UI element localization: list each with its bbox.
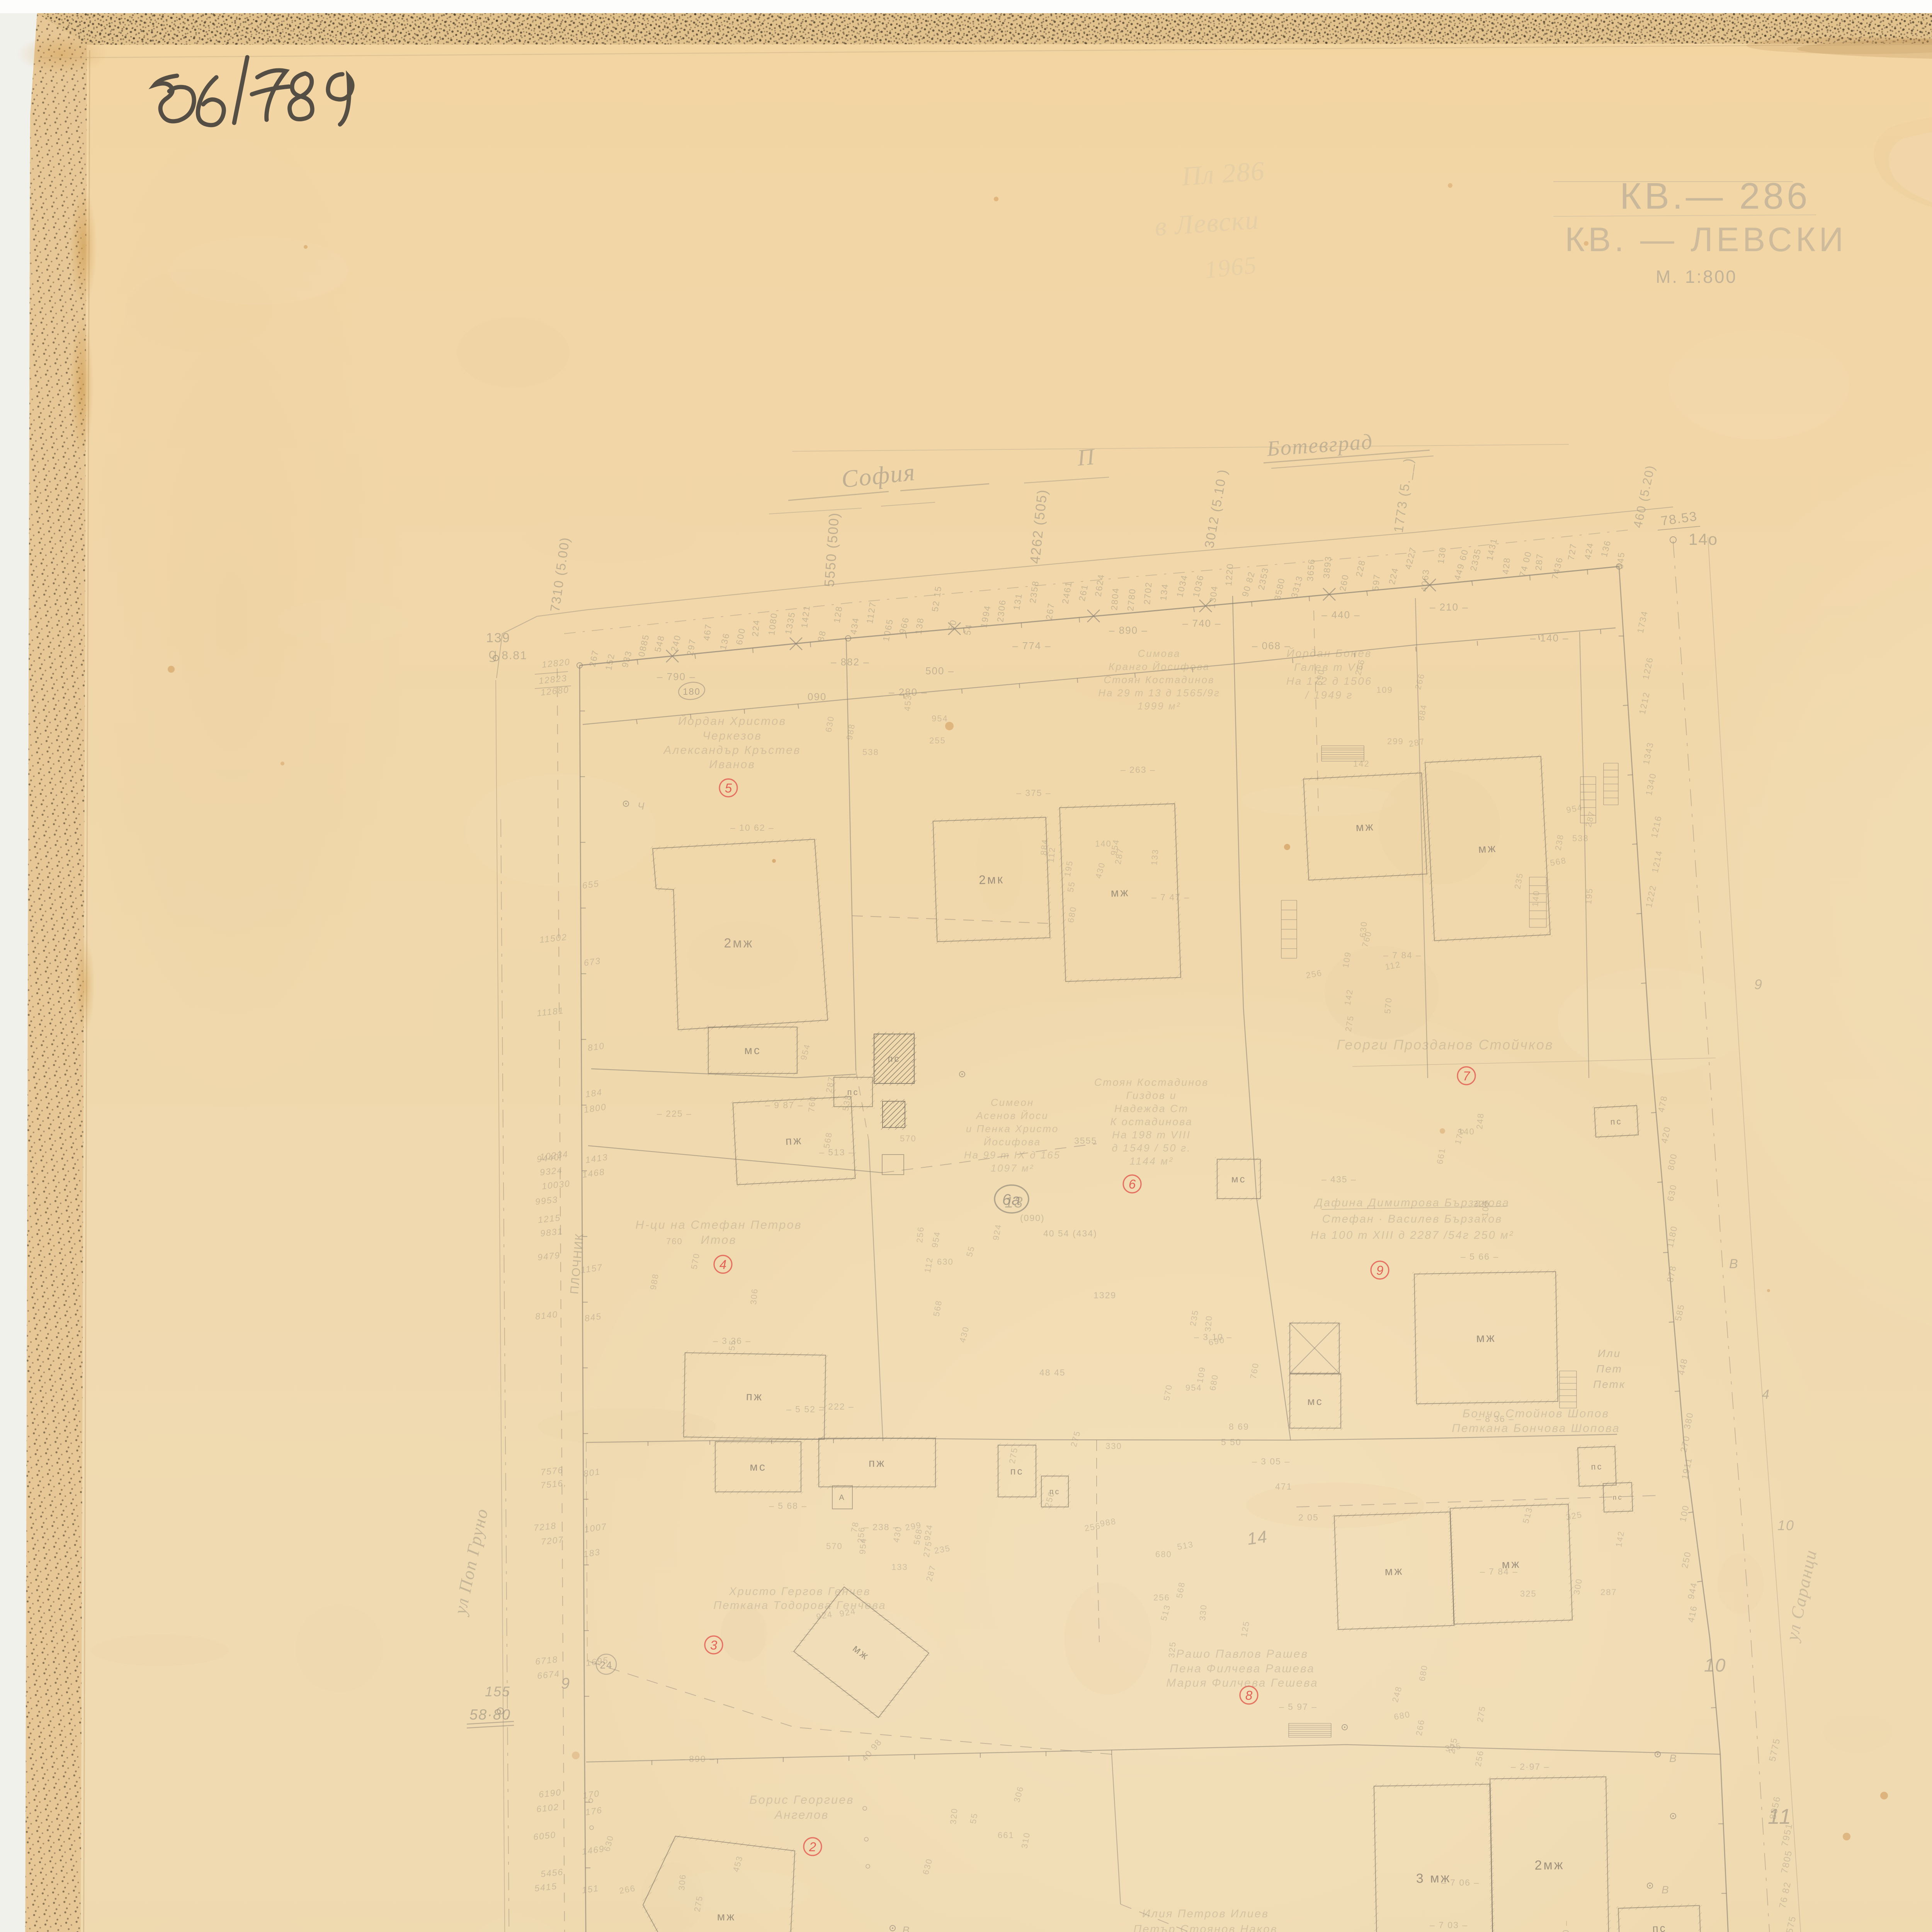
svg-text:325: 325 bbox=[1167, 1641, 1178, 1658]
svg-text:9: 9 bbox=[1376, 1263, 1383, 1277]
svg-text:пс: пс bbox=[1652, 1922, 1667, 1932]
svg-text:– 225 –: – 225 – bbox=[657, 1109, 692, 1119]
svg-text:133: 133 bbox=[891, 1562, 908, 1572]
svg-text:661: 661 bbox=[998, 1830, 1014, 1840]
svg-text:139: 139 bbox=[486, 631, 510, 645]
svg-text:1220: 1220 bbox=[1223, 563, 1235, 586]
svg-text:Стоян Костадинов: Стоян Костадинов bbox=[1094, 1077, 1209, 1088]
svg-text:Итов: Итов bbox=[701, 1233, 736, 1247]
svg-text:55: 55 bbox=[1065, 880, 1077, 893]
svg-text:– 222 –: – 222 – bbox=[819, 1401, 854, 1412]
svg-text:Гиздов и: Гиздов и bbox=[1126, 1090, 1177, 1101]
svg-text:Стоян Костадинов: Стоян Костадинов bbox=[1104, 674, 1214, 685]
svg-text:287: 287 bbox=[1533, 553, 1545, 571]
svg-text:мж: мж bbox=[717, 1910, 736, 1923]
svg-text:9: 9 bbox=[1754, 976, 1763, 992]
svg-text:760: 760 bbox=[806, 1095, 818, 1113]
svg-text:10: 10 bbox=[1777, 1517, 1794, 1533]
svg-text:Иванов: Иванов bbox=[709, 758, 755, 771]
svg-text:1144 м²: 1144 м² bbox=[1129, 1155, 1173, 1167]
svg-text:471: 471 bbox=[1275, 1481, 1292, 1492]
svg-text:13: 13 bbox=[1005, 1194, 1024, 1211]
svg-text:– 350 –: – 350 – bbox=[1561, 1920, 1571, 1932]
svg-text:287: 287 bbox=[1600, 1587, 1617, 1597]
svg-text:306: 306 bbox=[677, 1874, 688, 1891]
svg-text:256: 256 bbox=[915, 1226, 926, 1243]
svg-text:4: 4 bbox=[1762, 1387, 1770, 1402]
svg-text:– 10 62 –: – 10 62 – bbox=[730, 823, 774, 833]
svg-text:B: B bbox=[1669, 1752, 1677, 1764]
svg-text:Асенов Йоси: Асенов Йоси bbox=[975, 1110, 1049, 1121]
svg-text:9: 9 bbox=[561, 1675, 570, 1692]
svg-text:пж: пж bbox=[746, 1390, 764, 1403]
svg-text:М. 1:800: М. 1:800 bbox=[1656, 267, 1737, 287]
svg-text:58·80: 58·80 bbox=[469, 1707, 511, 1723]
svg-text:Йордан Бонев: Йордан Бонев bbox=[1287, 647, 1372, 659]
svg-text:Ангелов: Ангелов bbox=[774, 1808, 829, 1821]
svg-text:2мк: 2мк bbox=[978, 872, 1004, 887]
svg-text:пж: пж bbox=[869, 1457, 886, 1469]
svg-text:– 263 –: – 263 – bbox=[1121, 765, 1156, 775]
svg-text:453: 453 bbox=[902, 694, 913, 712]
svg-text:– 3 10 –: – 3 10 – bbox=[1194, 1332, 1232, 1342]
svg-text:3555: 3555 bbox=[1074, 1136, 1097, 1146]
svg-text:– 9 87 –: – 9 87 – bbox=[765, 1100, 803, 1110]
svg-text:пс: пс bbox=[1610, 1116, 1622, 1127]
svg-text:224: 224 bbox=[750, 619, 762, 637]
svg-text:Петкана Тодорова Генчева: Петкана Тодорова Генчева bbox=[713, 1599, 886, 1612]
svg-text:8 69: 8 69 bbox=[1229, 1422, 1249, 1432]
svg-text:570: 570 bbox=[826, 1541, 843, 1551]
svg-text:На 29 т 13 д 1565/9г: На 29 т 13 д 1565/9г bbox=[1098, 687, 1220, 699]
svg-text:6: 6 bbox=[1129, 1177, 1136, 1191]
svg-text:54: 54 bbox=[962, 623, 974, 636]
svg-text:мс: мс bbox=[750, 1461, 767, 1473]
svg-text:Александър Кръстев: Александър Кръстев bbox=[663, 744, 801, 757]
svg-text:630: 630 bbox=[937, 1257, 954, 1267]
svg-text:– 3 05 –: – 3 05 – bbox=[1252, 1456, 1290, 1466]
svg-text:5 50: 5 50 bbox=[1221, 1437, 1242, 1447]
svg-text:4063: 4063 bbox=[1419, 568, 1431, 592]
svg-text:345: 345 bbox=[1615, 551, 1626, 570]
svg-text:Симова: Симова bbox=[1138, 648, 1181, 659]
svg-text:1329: 1329 bbox=[1094, 1290, 1116, 1300]
svg-text:Ч: Ч bbox=[638, 800, 645, 812]
svg-text:– 3 36 –: – 3 36 – bbox=[713, 1336, 751, 1346]
svg-text:14: 14 bbox=[1246, 1527, 1269, 1549]
svg-text:2: 2 bbox=[809, 1840, 816, 1854]
svg-text:325: 325 bbox=[1473, 1199, 1490, 1209]
svg-text:д 1549 / 50 г.: д 1549 / 50 г. bbox=[1112, 1142, 1191, 1154]
svg-text:134: 134 bbox=[1158, 583, 1170, 601]
svg-text:– 5 97 –: – 5 97 – bbox=[1279, 1702, 1317, 1712]
svg-text:140: 140 bbox=[1530, 890, 1541, 907]
svg-text:Симеон: Симеон bbox=[991, 1097, 1034, 1108]
svg-text:– 5 68 –: – 5 68 – bbox=[769, 1501, 807, 1511]
svg-text:– 5 66 –: – 5 66 – bbox=[1461, 1252, 1499, 1262]
svg-text:325: 325 bbox=[1520, 1589, 1537, 1599]
svg-text:140: 140 bbox=[1095, 839, 1112, 849]
svg-text:2702: 2702 bbox=[1142, 581, 1154, 605]
svg-text:Пл 286: Пл 286 bbox=[1180, 156, 1266, 192]
svg-text:428: 428 bbox=[1500, 557, 1512, 575]
svg-text:8: 8 bbox=[1245, 1688, 1253, 1702]
svg-text:248: 248 bbox=[1475, 1112, 1486, 1130]
svg-text:Пена Филчева Рашева: Пена Филчева Рашева bbox=[1170, 1662, 1315, 1675]
svg-text:500 –: 500 – bbox=[925, 665, 954, 677]
svg-text:Йордан Христов: Йордан Христов bbox=[678, 714, 786, 728]
svg-text:пс: пс bbox=[1010, 1465, 1024, 1477]
svg-text:3656: 3656 bbox=[1305, 558, 1316, 582]
svg-text:Рашо Павлов Рашев: Рашо Павлов Рашев bbox=[1176, 1648, 1308, 1660]
svg-text:109: 109 bbox=[1376, 685, 1393, 695]
svg-text:538: 538 bbox=[862, 747, 879, 757]
svg-text:133: 133 bbox=[1149, 849, 1160, 866]
svg-text:пс: пс bbox=[1591, 1461, 1603, 1471]
svg-text:Кранго Йосифова: Кранго Йосифова bbox=[1109, 661, 1210, 672]
svg-text:П: П bbox=[1076, 444, 1097, 471]
svg-text:255: 255 bbox=[929, 736, 946, 745]
svg-text:(090): (090) bbox=[1020, 1213, 1045, 1223]
svg-text:Петк: Петк bbox=[1593, 1378, 1626, 1390]
svg-text:142: 142 bbox=[1353, 759, 1370, 769]
svg-text:– 774 –: – 774 – bbox=[1012, 640, 1051, 651]
svg-text:2мж: 2мж bbox=[1534, 1857, 1565, 1872]
svg-text:Петър Стоянов Наков: Петър Стоянов Наков bbox=[1133, 1923, 1277, 1932]
svg-text:мж: мж bbox=[1476, 1331, 1496, 1345]
svg-text:На 100 т XIII д 2287 /54г: На 100 т XIII д 2287 /54г 250 м² bbox=[1311, 1229, 1514, 1242]
svg-text:B: B bbox=[902, 1924, 910, 1932]
svg-text:Борис Георгиев: Борис Георгиев bbox=[749, 1793, 854, 1806]
svg-text:Надежда Ст: Надежда Ст bbox=[1114, 1103, 1189, 1114]
svg-text:538: 538 bbox=[1572, 833, 1589, 843]
svg-text:306: 306 bbox=[748, 1288, 760, 1305]
svg-text:пс: пс bbox=[888, 1054, 901, 1064]
svg-text:На 172 д 1506: На 172 д 1506 bbox=[1286, 675, 1372, 687]
svg-text:330: 330 bbox=[1197, 1604, 1209, 1621]
svg-text:Пет: Пет bbox=[1596, 1363, 1622, 1375]
svg-text:954: 954 bbox=[1185, 1383, 1202, 1393]
svg-text:884: 884 bbox=[1039, 838, 1050, 856]
svg-text:– 513 –: – 513 – bbox=[819, 1147, 854, 1157]
svg-text:1097 м²: 1097 м² bbox=[991, 1162, 1034, 1174]
svg-text:320: 320 bbox=[948, 1808, 959, 1825]
svg-text:597: 597 bbox=[1370, 573, 1382, 592]
svg-text:155: 155 bbox=[485, 1684, 510, 1699]
svg-text:А: А bbox=[839, 1493, 845, 1502]
svg-text:– 7 06 –: – 7 06 – bbox=[1441, 1878, 1480, 1888]
svg-text:– 435 –: – 435 – bbox=[1321, 1174, 1357, 1184]
svg-text:– 790 –: – 790 – bbox=[657, 671, 696, 682]
svg-text:– 7 03 –: – 7 03 – bbox=[1430, 1920, 1468, 1930]
svg-text:760: 760 bbox=[666, 1236, 683, 1246]
svg-text:– 210 –: – 210 – bbox=[1430, 601, 1469, 613]
svg-text:пс: пс bbox=[1612, 1493, 1623, 1502]
svg-text:3: 3 bbox=[710, 1638, 718, 1652]
svg-text:2 05: 2 05 bbox=[1298, 1512, 1319, 1522]
svg-text:К остадинова: К остадинова bbox=[1110, 1116, 1192, 1128]
svg-text:680: 680 bbox=[1155, 1549, 1172, 1559]
svg-text:140: 140 bbox=[1458, 1127, 1475, 1136]
svg-text:Илия Петров Илиев: Илия Петров Илиев bbox=[1142, 1908, 1269, 1920]
svg-text:55: 55 bbox=[968, 1812, 980, 1824]
svg-text:570: 570 bbox=[1383, 997, 1394, 1014]
svg-text:Христо Гергов Генчев: Христо Гергов Генчев bbox=[728, 1585, 871, 1598]
svg-text:2804: 2804 bbox=[1109, 587, 1121, 611]
svg-text:320: 320 bbox=[1203, 1315, 1214, 1332]
svg-text:– 8 36 –: – 8 36 – bbox=[1476, 1414, 1514, 1424]
svg-text:– 7 47 –: – 7 47 – bbox=[1151, 892, 1190, 902]
svg-text:1999 м²: 1999 м² bbox=[1138, 700, 1181, 712]
svg-text:– 740 –: – 740 – bbox=[1182, 617, 1221, 629]
svg-text:– 375 –: – 375 – bbox=[1016, 788, 1051, 798]
svg-text:090: 090 bbox=[808, 691, 827, 702]
svg-text:мс: мс bbox=[1307, 1395, 1323, 1407]
svg-text:КВ.— 286: КВ.— 286 bbox=[1620, 175, 1810, 217]
svg-text:256: 256 bbox=[1153, 1593, 1170, 1602]
svg-text:Н-ци на Стефан Петров: Н-ци на Стефан Петров bbox=[635, 1218, 802, 1231]
svg-text:и Пенка Христо: и Пенка Христо bbox=[966, 1123, 1059, 1134]
svg-text:– 890 –: – 890 – bbox=[680, 1754, 715, 1764]
svg-text:– 238 –: – 238 – bbox=[864, 1522, 899, 1532]
svg-text:330: 330 bbox=[1105, 1441, 1122, 1451]
svg-text:На 99 т IX д 165: На 99 т IX д 165 bbox=[964, 1149, 1061, 1161]
svg-text:– 882 –: – 882 – bbox=[831, 656, 870, 668]
svg-text:48 45: 48 45 bbox=[1039, 1367, 1066, 1378]
svg-text:7: 7 bbox=[1463, 1069, 1471, 1083]
svg-text:Или: Или bbox=[1598, 1347, 1621, 1359]
svg-text:мж: мж bbox=[1478, 842, 1497, 856]
svg-text:– 068 –: – 068 – bbox=[1252, 640, 1291, 651]
svg-text:4: 4 bbox=[719, 1257, 726, 1272]
svg-text:40 54 (434): 40 54 (434) bbox=[1043, 1228, 1097, 1238]
svg-text:Йосифова: Йосифова bbox=[984, 1136, 1041, 1148]
svg-text:2мж: 2мж bbox=[724, 936, 753, 951]
svg-text:570: 570 bbox=[900, 1134, 917, 1143]
svg-text:Мария Филчева Гешева: Мария Филчева Гешева bbox=[1166, 1677, 1318, 1689]
svg-text:180: 180 bbox=[683, 687, 701, 697]
svg-text:10: 10 bbox=[1704, 1655, 1726, 1676]
svg-text:467: 467 bbox=[701, 623, 713, 641]
svg-text:пж: пж bbox=[785, 1134, 803, 1148]
svg-text:– 7 84 –: – 7 84 – bbox=[1383, 950, 1422, 960]
svg-text:Стефан · Василев Бързаков: Стефан · Василев Бързаков bbox=[1322, 1213, 1503, 1225]
svg-text:мж: мж bbox=[1355, 820, 1375, 834]
svg-text:954: 954 bbox=[932, 714, 948, 723]
svg-text:Георги Прозданов Стойчков: Георги Прозданов Стойчков bbox=[1337, 1037, 1554, 1053]
svg-text:78: 78 bbox=[849, 1520, 861, 1533]
svg-text:– 140 –: – 140 – bbox=[1530, 632, 1569, 644]
svg-text:мж: мж bbox=[1111, 886, 1130, 900]
svg-text:5: 5 bbox=[725, 781, 732, 795]
svg-text:На 198 т VIII: На 198 т VIII bbox=[1112, 1129, 1191, 1141]
svg-text:мс: мс bbox=[1231, 1173, 1247, 1185]
svg-text:B: B bbox=[1729, 1257, 1739, 1271]
svg-text:195: 195 bbox=[1583, 888, 1595, 905]
svg-text:299: 299 bbox=[1387, 736, 1404, 746]
svg-text:1965: 1965 bbox=[1203, 251, 1259, 284]
svg-text:Черкезов: Черкезов bbox=[702, 730, 762, 742]
svg-text:– 2·97 –: – 2·97 – bbox=[1511, 1762, 1549, 1772]
svg-text:– 440 –: – 440 – bbox=[1321, 609, 1361, 621]
svg-text:– 890 –: – 890 – bbox=[1109, 624, 1148, 636]
svg-text:КВ. — ЛЕВСКИ: КВ. — ЛЕВСКИ bbox=[1565, 220, 1847, 259]
svg-text:14o: 14o bbox=[1689, 530, 1718, 548]
svg-text:мс: мс bbox=[744, 1044, 761, 1057]
svg-text:– 7 84 –: – 7 84 – bbox=[1480, 1566, 1518, 1577]
svg-text:/ 1949 г: / 1949 г bbox=[1304, 689, 1353, 701]
svg-text:B: B bbox=[1662, 1884, 1670, 1896]
svg-text:мж: мж bbox=[1384, 1565, 1404, 1578]
